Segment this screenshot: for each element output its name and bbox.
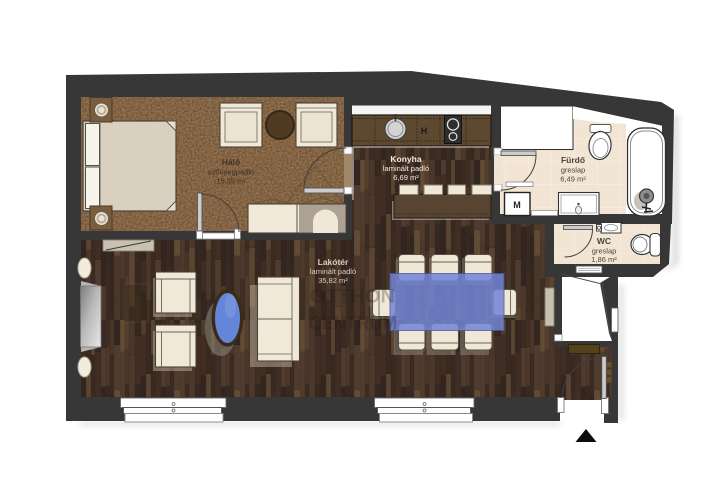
svg-text:15,35 m²: 15,35 m² bbox=[216, 177, 246, 186]
svg-text:laminált padló: laminált padló bbox=[383, 164, 429, 173]
svg-text:OTTHON: OTTHON bbox=[310, 286, 395, 308]
svg-text:laminált padló: laminált padló bbox=[310, 267, 356, 276]
svg-text:WC: WC bbox=[597, 236, 611, 246]
svg-text:1,86 m²: 1,86 m² bbox=[591, 255, 617, 264]
svg-text:35,82 m²: 35,82 m² bbox=[318, 276, 348, 285]
svg-text:greslap: greslap bbox=[561, 166, 586, 175]
svg-text:Konyha: Konyha bbox=[390, 154, 421, 164]
svg-text:Háló: Háló bbox=[222, 157, 240, 167]
svg-text:CENTRUM: CENTRUM bbox=[309, 313, 397, 335]
svg-text:szőnyegpadló: szőnyegpadló bbox=[208, 168, 254, 177]
svg-text:M: M bbox=[513, 200, 521, 210]
svg-text:Lakótér: Lakótér bbox=[318, 257, 349, 267]
svg-text:6,49 m²: 6,49 m² bbox=[560, 175, 586, 184]
svg-text:H: H bbox=[421, 126, 428, 136]
svg-text:6,69 m²: 6,69 m² bbox=[393, 173, 419, 182]
svg-text:Fürdő: Fürdő bbox=[561, 155, 585, 165]
